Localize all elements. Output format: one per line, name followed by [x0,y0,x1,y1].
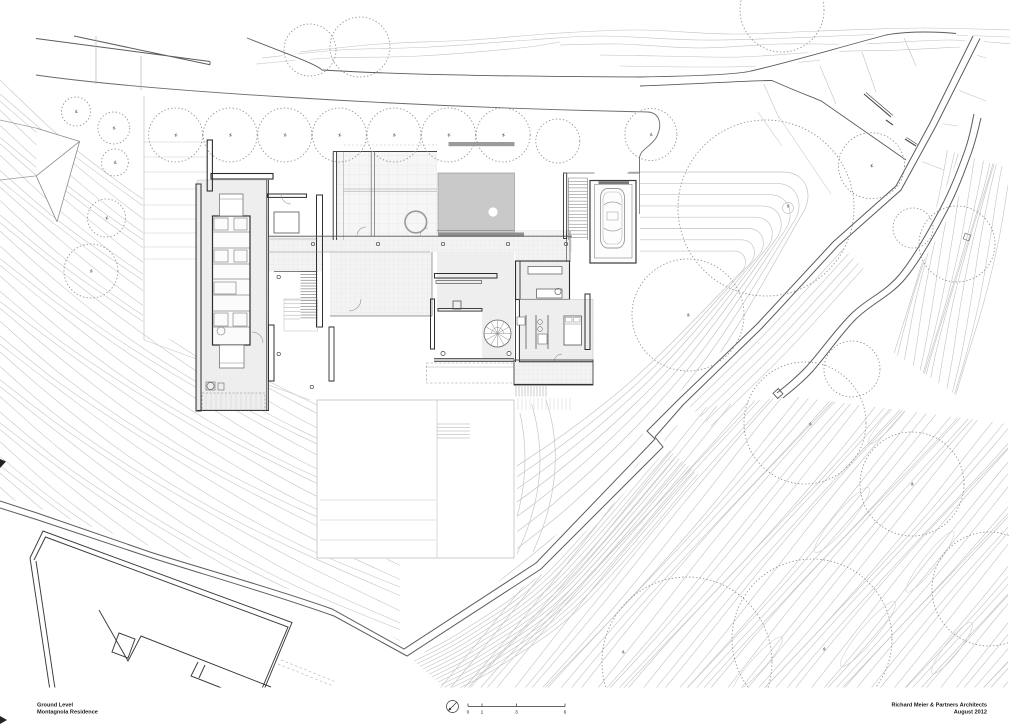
svg-text:Ground Level: Ground Level [37,703,73,709]
svg-text:3: 3 [515,710,518,716]
svg-text:August 2012: August 2012 [954,710,987,716]
svg-text:Montagnola Residence: Montagnola Residence [37,710,98,716]
svg-text:0: 0 [467,710,470,716]
svg-text:1: 1 [481,710,484,716]
svg-text:6: 6 [564,710,567,716]
svg-text:Richard Meier & Partners Archi: Richard Meier & Partners Architects [891,703,987,709]
